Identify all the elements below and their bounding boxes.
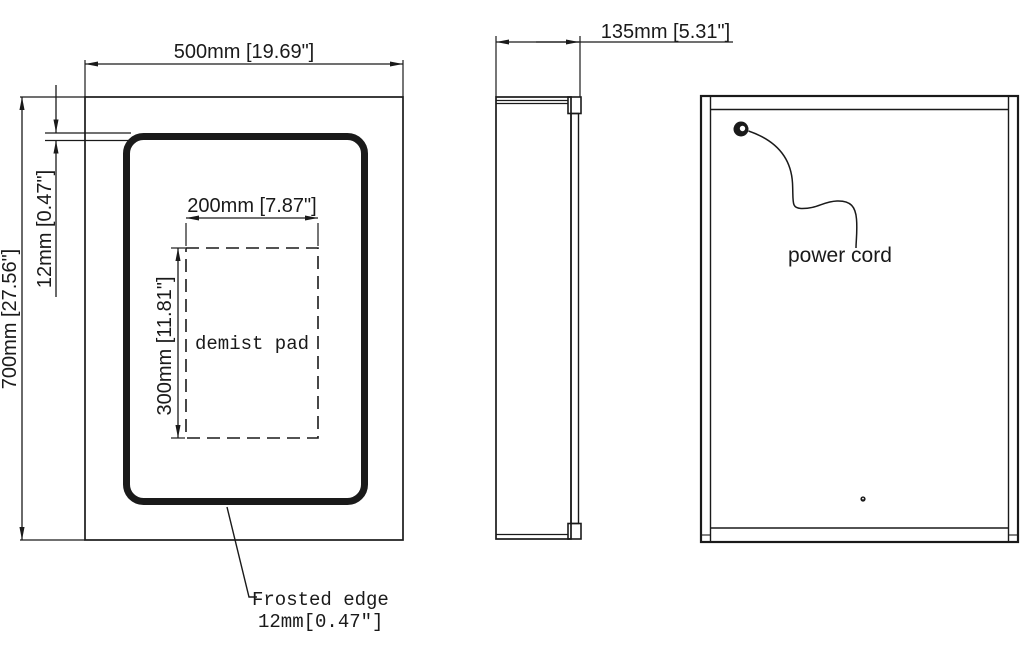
demist-pad-label: demist pad bbox=[186, 333, 318, 355]
dim-label-frosted-12mm: 12mm [0.47"] bbox=[33, 154, 57, 304]
frosted-edge-leader-line bbox=[227, 507, 257, 597]
side-cabinet-outline bbox=[496, 97, 571, 539]
side-bottom-hinge-tab bbox=[568, 524, 581, 540]
front-mirror-outline bbox=[85, 97, 403, 540]
back-cabinet-outline bbox=[701, 96, 1018, 542]
dim-label-depth-135mm: 135mm [5.31"] bbox=[588, 21, 743, 43]
back-view bbox=[701, 96, 1018, 542]
frosted-edge-note-line1: Frosted edge bbox=[252, 589, 389, 611]
power-cord-label: power cord bbox=[788, 245, 892, 267]
front-view bbox=[20, 60, 403, 597]
dim-label-demist-width-200mm: 200mm [7.87"] bbox=[186, 195, 318, 217]
power-cord-grommet-hole bbox=[740, 126, 745, 131]
side-mirror-door-strip bbox=[571, 114, 579, 524]
side-view bbox=[496, 36, 733, 539]
dim-label-width-500mm: 500mm [19.69"] bbox=[85, 41, 403, 63]
mirror-cabinet-technical-drawing: 500mm [19.69"] 700mm [27.56"] 12mm [0.47… bbox=[0, 0, 1024, 657]
dim-label-height-700mm: 700mm [27.56"] bbox=[0, 234, 22, 404]
side-top-hinge-tab bbox=[568, 97, 581, 114]
power-cord-line bbox=[749, 131, 857, 248]
dim-label-demist-height-300mm: 300mm [11.81"] bbox=[153, 261, 177, 431]
back-screw-dot-center bbox=[862, 498, 864, 500]
frosted-edge-note-line2: 12mm[0.47″] bbox=[258, 611, 383, 633]
